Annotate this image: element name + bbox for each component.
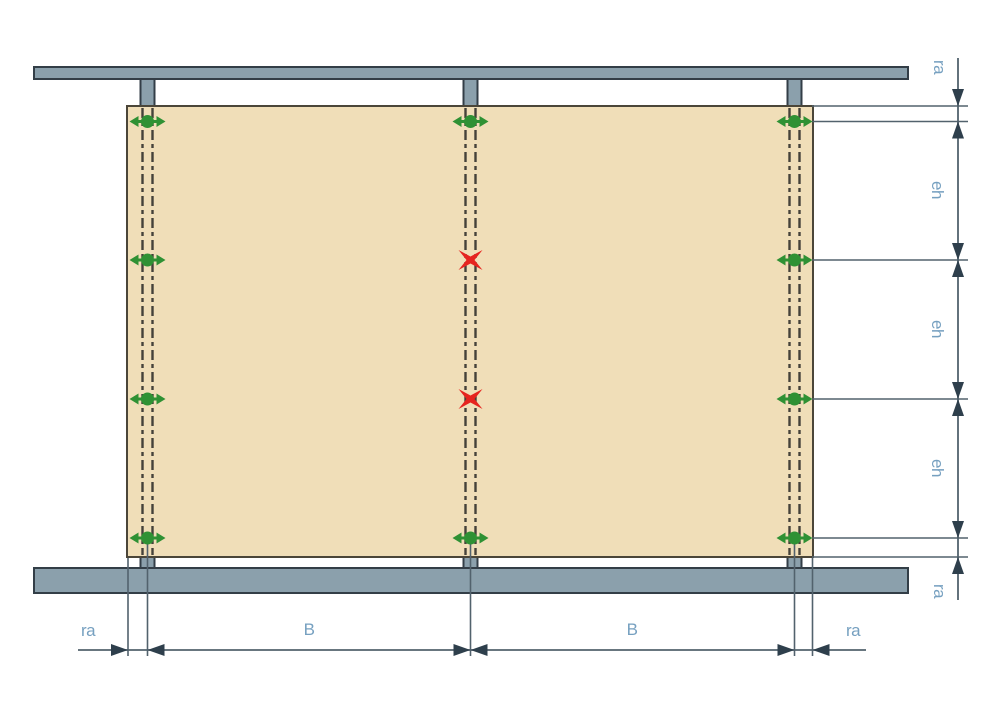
panel (127, 106, 813, 557)
dimension-arrow (778, 644, 795, 656)
dimension-arrow (148, 644, 165, 656)
dimension-arrow (952, 243, 964, 260)
dim-label-eh: eh (928, 320, 947, 338)
dimension-arrow (813, 644, 830, 656)
fastening-layout-diagram: ra B B ra ra eh eh eh ra (0, 0, 992, 720)
dim-label-ra: ra (930, 584, 949, 599)
dim-label-ra: ra (930, 60, 949, 75)
top-beam-flange (34, 67, 908, 79)
top-beam-stem-center (464, 76, 478, 108)
top-beam-stem-left (141, 76, 155, 108)
dimension-arrow (454, 644, 471, 656)
dim-label-b: B (304, 620, 315, 639)
dimension-arrow (952, 521, 964, 538)
dimension-arrow (952, 260, 964, 277)
dimension-arrow (952, 399, 964, 416)
dimension-arrow (952, 122, 964, 139)
top-beam-stem-right (788, 76, 802, 108)
dim-label-ra: ra (81, 621, 96, 640)
dim-label-eh: eh (928, 459, 947, 477)
dim-label-ra: ra (846, 621, 861, 640)
dimension-arrow (111, 644, 128, 656)
dimension-arrow (471, 644, 488, 656)
dim-label-eh: eh (928, 181, 947, 199)
dimension-arrow (952, 557, 964, 574)
dimension-arrow (952, 89, 964, 106)
dim-label-b: B (627, 620, 638, 639)
dimension-arrow (952, 382, 964, 399)
diagram-svg: ra B B ra ra eh eh eh ra (0, 0, 992, 720)
